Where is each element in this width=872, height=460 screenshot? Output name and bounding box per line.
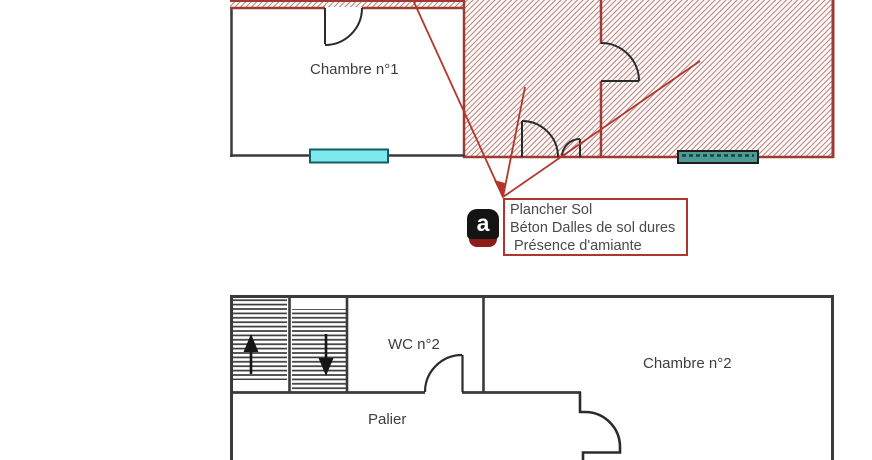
asbestos-icon: a [467, 209, 499, 248]
wc-door [425, 355, 463, 392]
room1-label: Chambre n°1 [310, 61, 399, 78]
room2-entry-door [580, 392, 620, 460]
annotation-line-1: Plancher Sol [510, 201, 686, 219]
annotation-line-2: Béton Dalles de sol dures [510, 219, 686, 237]
upper-floor-plan [230, 0, 834, 199]
palier-label: Palier [368, 411, 406, 428]
hatched-room-window [678, 151, 758, 163]
annotation-line-3: Présence d'amiante [510, 237, 686, 255]
room1-door [325, 8, 362, 45]
asbestos-icon-letter: a [467, 209, 499, 239]
stair-flight-down [292, 309, 347, 392]
wc-label: WC n°2 [388, 336, 440, 353]
floor-plan-screenshot: Chambre n°1 WC n°2 Palier Chambre n°2 Pl… [0, 0, 872, 460]
room1-window [310, 150, 388, 163]
asbestos-annotation-box: Plancher Sol Béton Dalles de sol dures P… [503, 198, 688, 256]
floor-plan-canvas [0, 0, 872, 460]
asbestos-hatched-zone [464, 0, 834, 158]
room2-label: Chambre n°2 [643, 355, 732, 372]
stair-flight-up [231, 298, 287, 380]
leader-arrowhead [494, 180, 505, 199]
lower-floor-plan [230, 295, 834, 460]
